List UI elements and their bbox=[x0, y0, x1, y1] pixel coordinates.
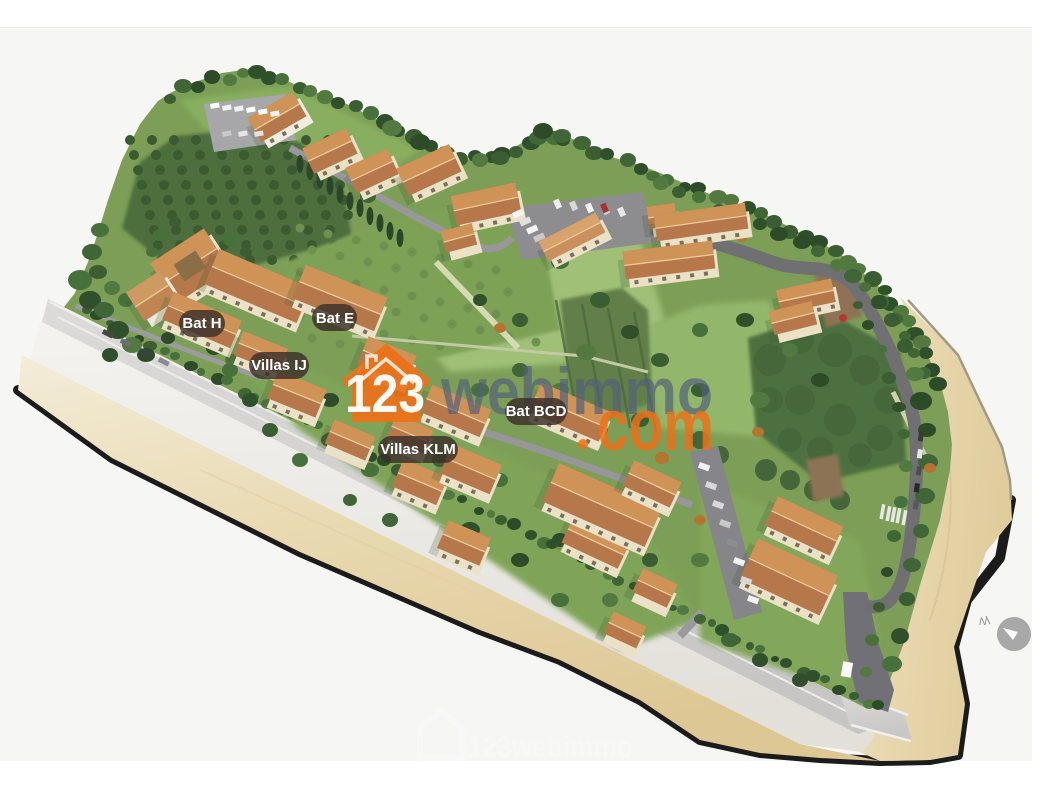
svg-text:123webimmo: 123webimmo bbox=[468, 731, 633, 764]
svg-text:Villas KLM: Villas KLM bbox=[380, 441, 456, 458]
svg-text:com: com bbox=[597, 386, 714, 466]
svg-text:N: N bbox=[979, 616, 987, 628]
svg-text:Villas IJ: Villas IJ bbox=[251, 357, 307, 374]
svg-text:123: 123 bbox=[345, 364, 425, 424]
svg-text:Bat E: Bat E bbox=[316, 310, 354, 327]
svg-text:Bat H: Bat H bbox=[182, 315, 221, 332]
svg-text:Bat BCD: Bat BCD bbox=[506, 403, 567, 420]
